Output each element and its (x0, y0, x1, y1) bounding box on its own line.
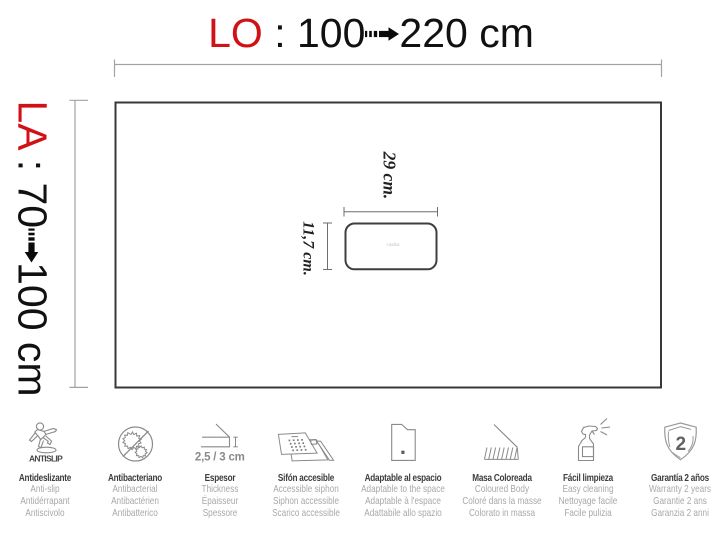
svg-text:2,5 / 3 cm: 2,5 / 3 cm (195, 452, 245, 464)
svg-text:ANTISLIP: ANTISLIP (29, 453, 63, 463)
svg-text:2: 2 (676, 434, 687, 455)
